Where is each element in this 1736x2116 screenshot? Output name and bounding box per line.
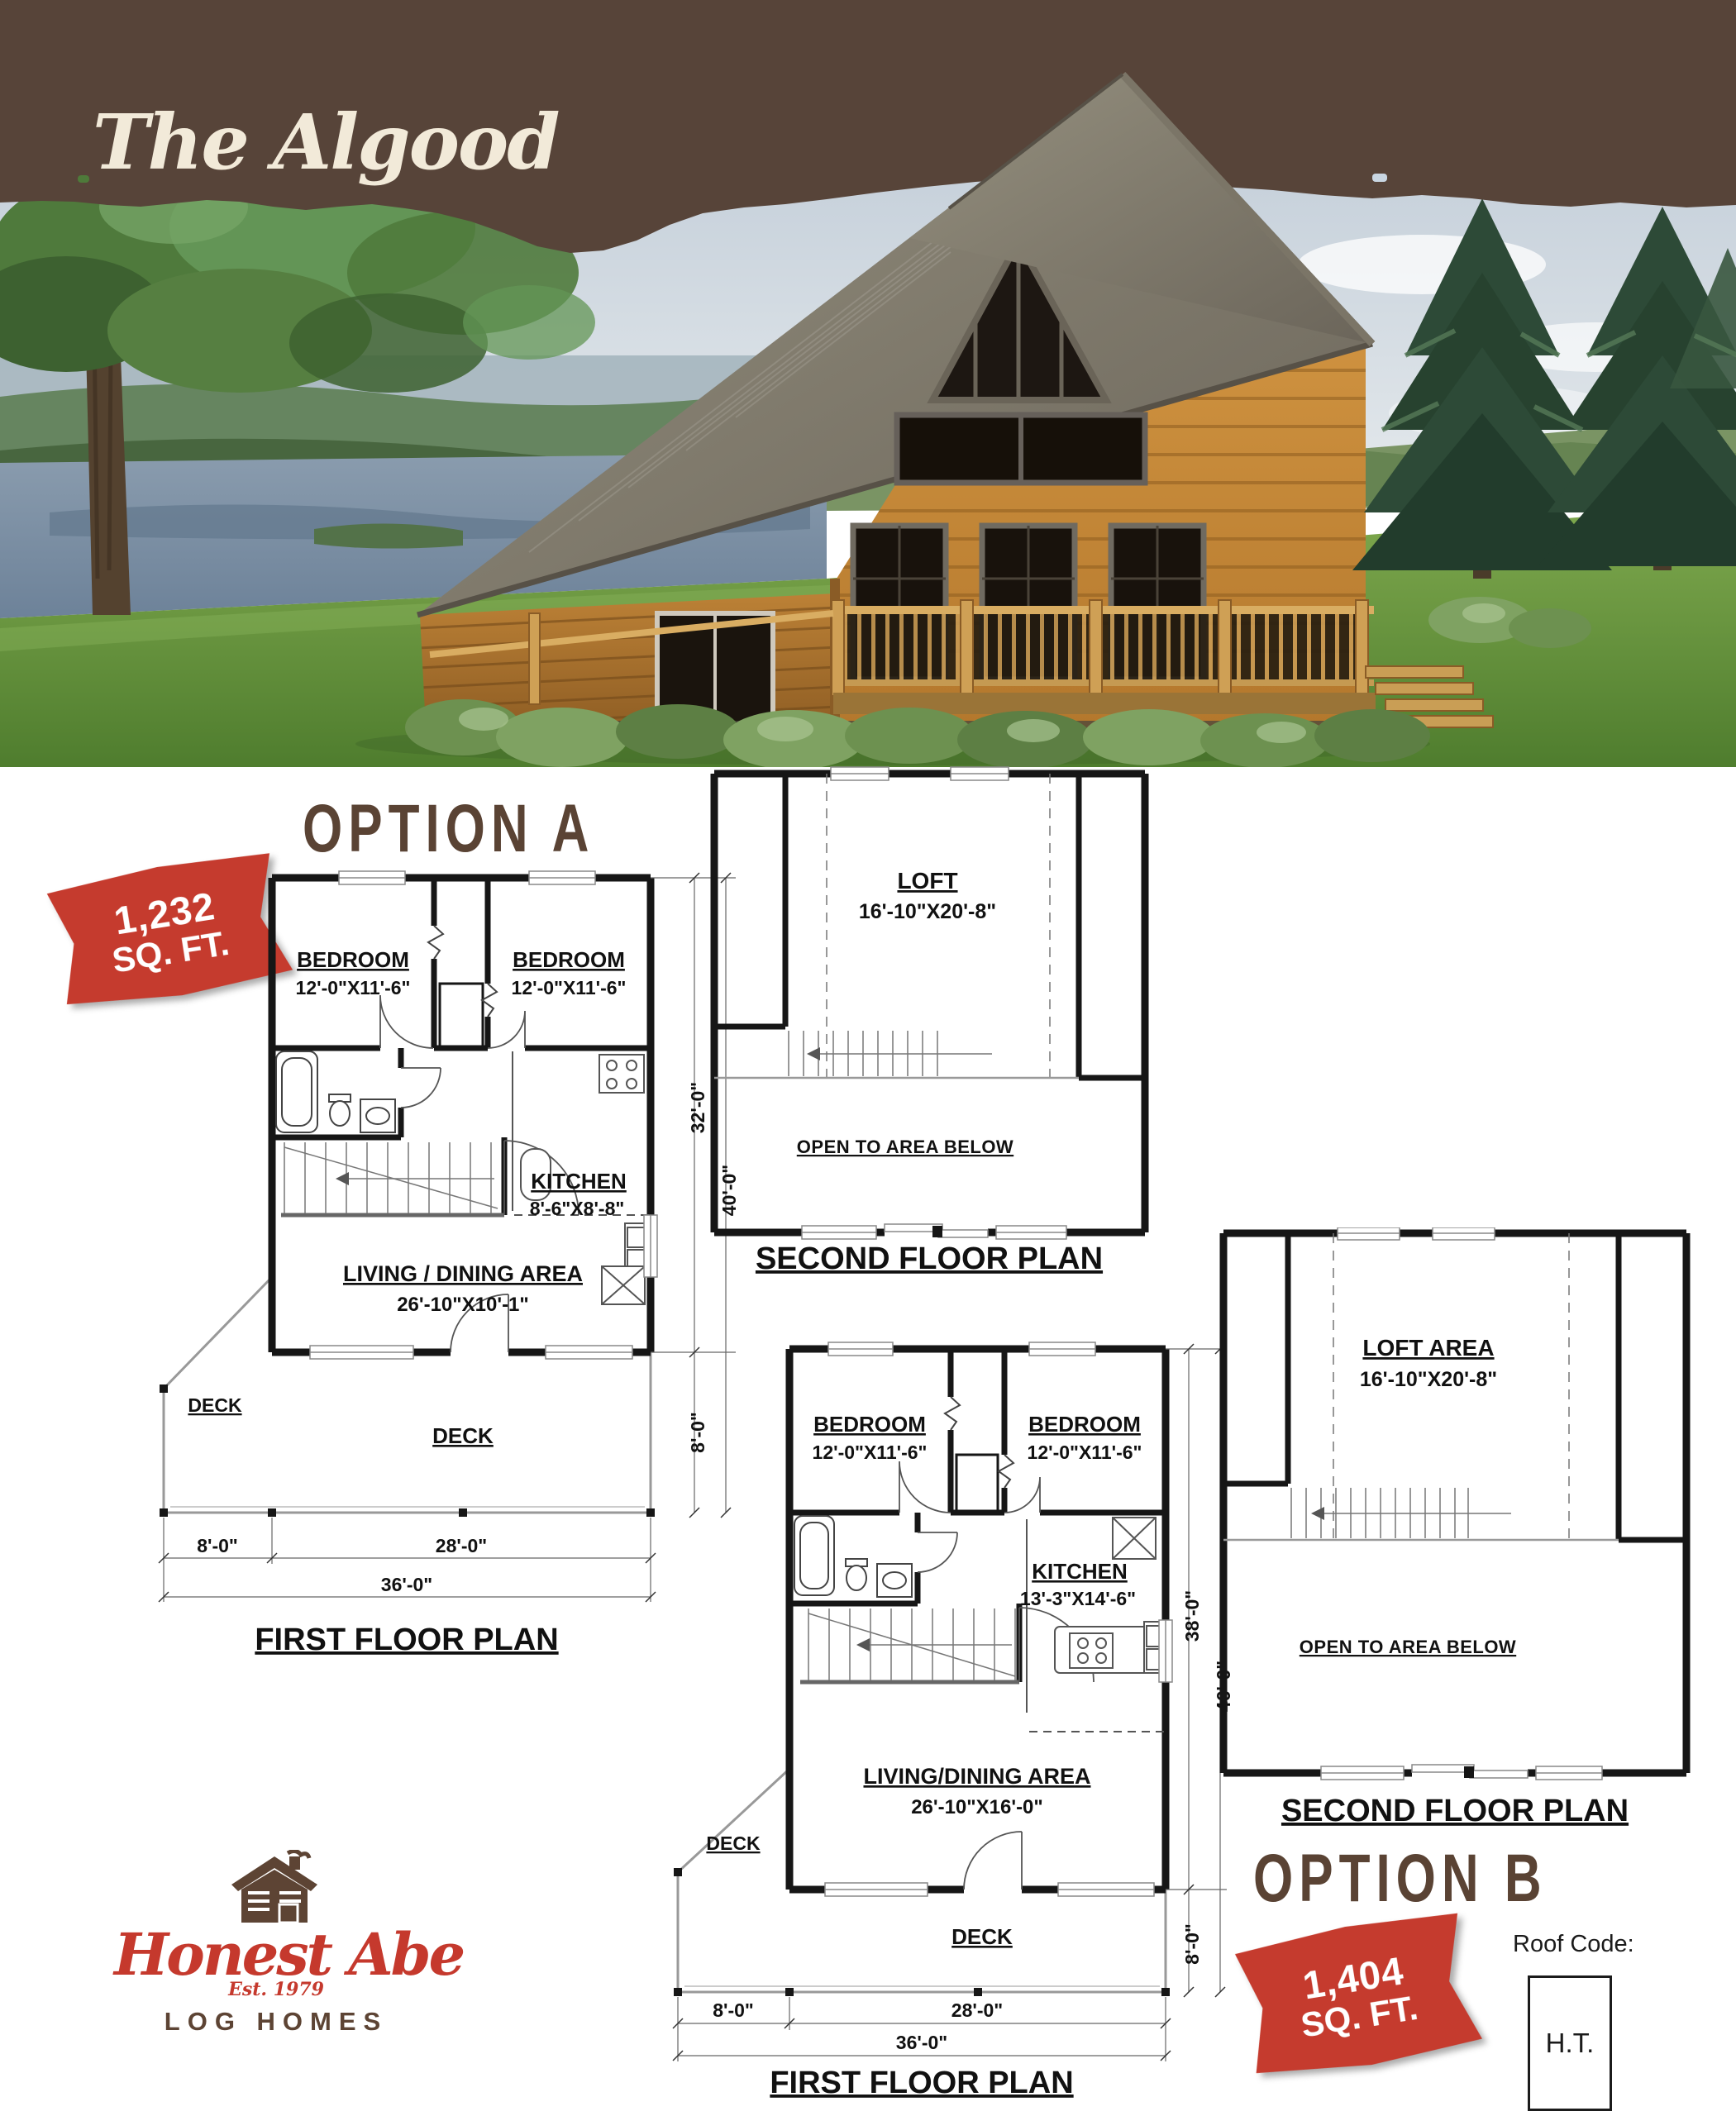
room-label: KITCHEN [531, 1169, 627, 1194]
logo-cabin-icon [225, 1850, 328, 1929]
dim-depth: 38'-0" [1181, 1590, 1203, 1642]
roof-code-value: H.T. [1546, 2028, 1595, 2059]
deck-label: DECK [188, 1394, 242, 1416]
room-label: KITCHEN [1032, 1559, 1128, 1584]
plan-caption: FIRST FLOOR PLAN [255, 1623, 558, 1657]
dim-total-width: 36'-0" [896, 2032, 947, 2053]
room-dim: 12'-0"X11'-6" [1028, 1442, 1142, 1463]
plan-caption: FIRST FLOOR PLAN [770, 2066, 1073, 2100]
logo-tagline: LOG HOMES [114, 2007, 438, 2037]
honest-abe-logo: Honest Abe Est. 1979 LOG HOMES [114, 1850, 438, 2037]
room-label: BEDROOM [813, 1412, 926, 1437]
room-dim: 12'-0"X11'-6" [813, 1442, 928, 1463]
option-a-heading: OPTION A [303, 790, 594, 868]
room-dim: 12'-0"X11'-6" [512, 977, 627, 998]
option-b-first-floor-plan: BEDROOM 12'-0"X11'-6" BEDROOM 12'-0"X11'… [653, 1331, 1248, 2116]
loft-label: LOFT [897, 868, 957, 894]
dim-main-width: 28'-0" [951, 1999, 1003, 2021]
plan-caption: SECOND FLOOR PLAN [1281, 1794, 1629, 1828]
dim-deck-width: 8'-0" [197, 1535, 238, 1556]
room-dim: 13'-3"X14'-6" [1020, 1588, 1136, 1609]
room-label: BEDROOM [297, 947, 409, 972]
deck-label: DECK [951, 1924, 1013, 1949]
deck-label: DECK [432, 1423, 494, 1448]
plan-caption: SECOND FLOOR PLAN [756, 1241, 1103, 1276]
room-label: BEDROOM [1028, 1412, 1141, 1437]
option-b-sqft-badge: 1,404 SQ. FT. [1228, 1909, 1483, 2084]
open-below-label: OPEN TO AREA BELOW [797, 1137, 1013, 1157]
room-label: BEDROOM [513, 947, 625, 972]
option-a-second-floor-plan: LOFT 16'-10"X20'-8" OPEN TO AREA BELOW S… [703, 765, 1166, 1294]
loft-dim: 16'-10"X20'-8" [859, 900, 996, 923]
open-below-label: OPEN TO AREA BELOW [1300, 1637, 1516, 1657]
roof-code-box: H.T. [1528, 1975, 1612, 2111]
loft-dim: 16'-10"X20'-8" [1360, 1368, 1497, 1391]
room-label: LIVING/DINING AREA [863, 1764, 1090, 1789]
room-dim: 26'-10"X16'-0" [911, 1796, 1043, 1818]
page-title: The Algood [93, 98, 556, 187]
deck-label: DECK [706, 1832, 761, 1854]
room-dim: 12'-0"X11'-6" [296, 977, 411, 998]
room-dim: 8'-6"X8'-8" [530, 1198, 625, 1219]
dim-deck-width: 8'-0" [713, 1999, 754, 2021]
dim-total-width: 36'-0" [381, 1574, 432, 1595]
loft-label: LOFT AREA [1362, 1335, 1494, 1361]
dim-main-width: 28'-0" [436, 1535, 487, 1556]
dim-deck-depth: 8'-0" [1181, 1923, 1203, 1965]
roof-code-label: Roof Code: [1513, 1931, 1634, 1958]
brochure-page: The Algood OPTION A 1,232 SQ. FT. [0, 0, 1736, 2116]
logo-wordmark: Honest Abe [114, 1928, 438, 1980]
room-label: LIVING / DINING AREA [343, 1261, 583, 1286]
room-dim: 26'-10"X10'-1" [397, 1294, 529, 1316]
option-b-second-floor-plan: LOFT AREA 16'-10"X20'-8" OPEN TO AREA BE… [1214, 1227, 1710, 1856]
